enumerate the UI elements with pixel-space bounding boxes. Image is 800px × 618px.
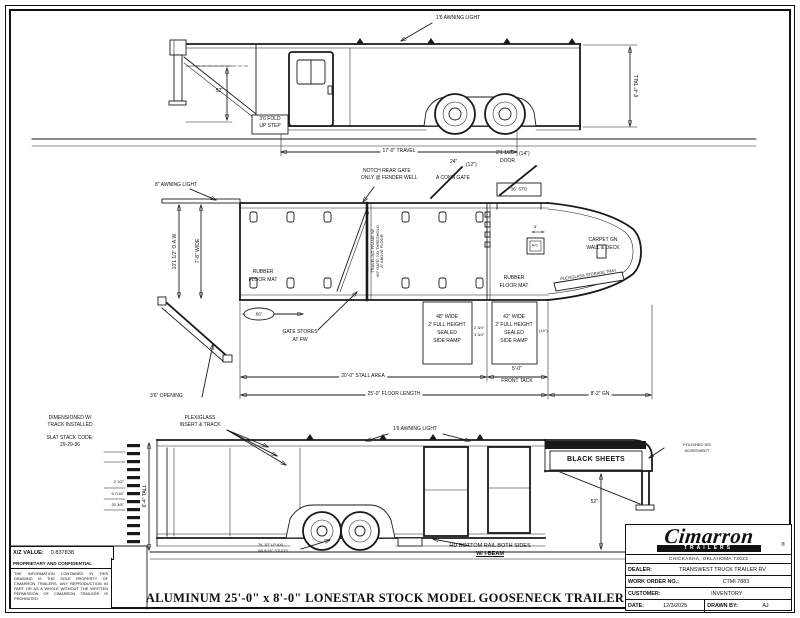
axle-note-2: W/ 9/16" STUDS <box>258 549 288 554</box>
dimension-note-2: TRACK INSTALLED <box>47 423 92 429</box>
slat-code-value: 29-29-36 <box>60 443 80 449</box>
legal-text: THE INFORMATION CONTAINED IN THIS DRAWIN… <box>10 569 112 609</box>
brand-subtitle: TRAILERS <box>657 545 761 552</box>
bottom-rail-note-2: W/ I-BEAM <box>476 551 504 557</box>
slat-code-label: SLAT STACK CODE: <box>47 436 94 442</box>
proprietary-title: PROPRIETARY AND CONFIDENTIAL <box>10 558 112 569</box>
work-order-row: WORK ORDER NO.: CTMI 7883 <box>626 576 791 588</box>
dimension-note-1: DIMENSIONED W/ <box>49 416 92 422</box>
gate-stores-label-2: AT FW <box>292 338 307 344</box>
plan-awning-light-label: 8" AWNING LIGHT <box>155 183 197 189</box>
customer-value: INVENTORY <box>663 591 791 597</box>
stack-dim-1: 2 1/2" <box>114 480 124 485</box>
conn-gate-offset: (12") <box>466 163 477 169</box>
black-sheets-label: BLACK SHEETS <box>567 456 625 464</box>
title-block: Cimarron TRAILERS ® CHICKASHA, OKLAHOMA … <box>625 524 792 611</box>
dealer-row: DEALER: TRANSWEST TRUCK TRAILER RV <box>626 564 791 576</box>
bottom-rail-note-1: HD BOTTOM RAIL BOTH SIDES <box>449 543 530 549</box>
ramp-gap-dim-2: 3 3/4" <box>474 333 484 338</box>
ramp48-label-4: SIDE RAMP <box>433 339 461 345</box>
notch-note-1: NOTCH REAR GATE <box>363 169 411 175</box>
gate-stores-label-1: GATE STORES <box>282 330 317 336</box>
stack-dim-2: 9 7/16" <box>111 492 124 497</box>
plexiglass-label-1: PLEXIGLASS <box>185 416 216 422</box>
travel-dim: 17'-0" TRAVEL <box>380 149 417 155</box>
oaw-dim: 10'1 1/2" O.A.W. <box>173 233 179 270</box>
brand-address: CHICKASHA, OKLAHOMA 73023 <box>626 555 791 564</box>
top-awning-light-label: 1'6 AWNING LIGHT <box>436 16 480 22</box>
work-order-label: WORK ORDER NO.: <box>626 579 681 585</box>
work-order-value: CTMI 7883 <box>681 579 791 585</box>
date-label: DATE: <box>626 603 646 609</box>
ac-unit-label: A/C <box>532 244 539 249</box>
date-drawn-row: DATE: 12/3/2025 DRAWN BY: AJ <box>626 600 791 612</box>
dealer-value: TRANSWEST TRUCK TRAILER RV <box>654 567 791 573</box>
top-height-dim: 6'-4" TALL <box>635 75 641 98</box>
blueprint-page: 1'6 AWNING LIGHT 6'-4" TALL 52" 3'6 FOLD… <box>0 0 800 618</box>
bottom-height-dim: 6'-4" TALL <box>143 485 149 508</box>
top-neck-height-dim: 52" <box>216 89 223 95</box>
ramp-gap-dim-1: 2 3/4" <box>474 326 484 331</box>
floor-length-dim: 25'-0" FLOOR LENGTH <box>365 392 422 398</box>
opening-dim: 3'6" OPENING <box>150 394 183 400</box>
conn-gate-label: A CONN GATE <box>436 176 470 182</box>
front-tack-dim-2: FRONT TACK <box>499 379 534 385</box>
drawing-title: ALUMINUM 25'-0" x 8'-0" LONESTAR STOCK M… <box>141 591 629 608</box>
drawn-by-label: DRAWN BY: <box>705 603 740 609</box>
plan-door-offset: (14") <box>519 152 530 158</box>
nosesheet-label-1: POLISHED S/S <box>683 443 711 448</box>
front-tack-dim-1: 5'-0" <box>510 367 524 373</box>
stall-area-dim: 20'-0" STALL AREA <box>339 374 387 380</box>
date-value: 12/3/2025 <box>646 603 704 609</box>
ramp42-offset-dim: (14") <box>539 329 548 334</box>
front-mat-label-1: RUBBER <box>504 276 525 282</box>
fold-up-step-label-2: UP STEP <box>259 124 280 130</box>
fold-up-step-label-1: 3'6 FOLD <box>259 117 280 123</box>
carpet-note-1: CARPET GN <box>588 238 617 244</box>
xz-value: 0.837838 <box>51 550 74 556</box>
ramp48-label-1: 48" WIDE <box>436 315 458 321</box>
ramp42-label-1: 42" WIDE <box>503 315 525 321</box>
ac-dim: 5" <box>534 225 538 230</box>
axle-note-1: 7K 10" LP AXL. <box>258 543 285 548</box>
front-mat-label-2: FLOOR MAT <box>500 284 529 290</box>
stack-dim-3: 20 3/8" <box>111 503 124 508</box>
customer-row: CUSTOMER: INVENTORY <box>626 588 791 600</box>
gooseneck-dim: 8'-2" GN <box>589 392 612 398</box>
registered-mark: ® <box>781 542 785 548</box>
customer-label: CUSTOMER: <box>626 591 663 597</box>
bay-dim: 66" <box>256 311 263 316</box>
top-view-drawing <box>32 23 756 156</box>
drawn-by-value: AJ <box>740 603 791 609</box>
traveling-gate-note: TRAVELING FRAME W/ 60" GATE, NO THRESHOL… <box>371 225 385 277</box>
plan-door-label: DOOR <box>500 159 515 165</box>
traveling-gate-note-3: 8" ABOVE FLOOR <box>380 225 385 277</box>
dealer-label: DEALER: <box>626 567 654 573</box>
ramp48-label-2: 2' FULL HEIGHT <box>428 323 465 329</box>
nosesheet-label-2: NOSESHEET <box>685 449 710 454</box>
ramp42-label-4: SIDE RAMP <box>500 339 528 345</box>
xz-value-label: X/Z VALUE: <box>11 550 44 556</box>
plan-door-dim: 2'1 1/2" <box>496 151 513 157</box>
plan-view-drawing <box>158 166 652 399</box>
conn-gate-dim: 24" <box>450 160 457 166</box>
door-header-label: 36" STD <box>511 186 528 191</box>
bottom-awning-light-label: 1'6 AWNING LIGHT <box>393 427 437 433</box>
plexiglass-label-2: INSERT & TRACK <box>179 423 220 429</box>
rear-mat-label-2: FLOOR MAT <box>249 278 278 284</box>
rear-mat-label-1: RUBBER <box>253 270 274 276</box>
brand-logo: Cimarron TRAILERS ® <box>626 525 791 555</box>
bottom-neck-height-dim: 52" <box>591 500 598 506</box>
ramp48-label-3: SEALED <box>437 331 457 337</box>
ramp42-label-3: SEALED <box>504 331 524 337</box>
notch-note-2: ONLY @ FENDER WELL <box>361 176 418 182</box>
width-dim: 7'-8" WIDE <box>196 239 202 263</box>
ramp42-label-2: 2' FULL HEIGHT <box>495 323 532 329</box>
carpet-note-2: WALL & DECK <box>586 246 619 252</box>
